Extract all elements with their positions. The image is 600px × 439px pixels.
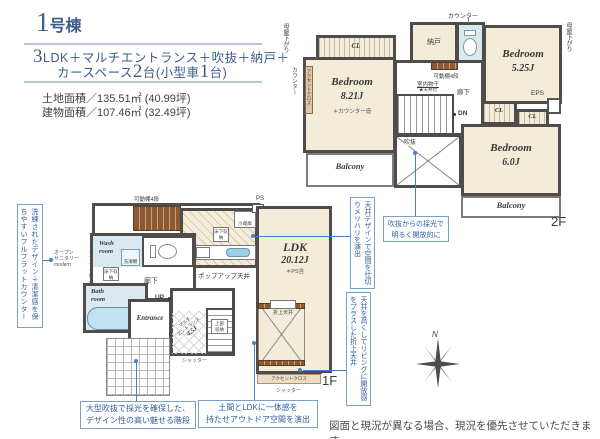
- annotation-void-light: 吹抜からの採光で 明るく開放的に: [383, 216, 449, 242]
- shelf-closet-1f: [133, 206, 181, 231]
- toilet-2f-tank-icon: [464, 30, 476, 36]
- counter-top-label: カウンター: [448, 11, 478, 20]
- open-sanitary-label: オープン サニタリー modern: [54, 250, 79, 268]
- annotation-stairs-dot: [134, 359, 138, 363]
- storage-nando-label: 納戸: [412, 37, 456, 47]
- counter-side-label: カウンター: [290, 67, 298, 103]
- bedroom-821-size: 8.21J: [310, 91, 394, 102]
- annotation-stairs: 大型吹抜で採光を確保した、 デザイン性の高い魅せる階段: [80, 401, 196, 429]
- annotation-coffered: 天井を高くしてリビングに開放感をプラスした折上天井: [346, 292, 371, 406]
- coffered-label: 折上天井: [273, 310, 293, 316]
- closet-2f-mid1-label: CL: [481, 107, 517, 114]
- kitchen-stove-icon: [196, 247, 210, 258]
- eps-label: EPS: [531, 90, 544, 97]
- spec-ldk-number: 3: [33, 46, 43, 67]
- building-area: 建物面積／107.46㎡ (32.49坪): [42, 104, 191, 120]
- closet-2f-mid2-label: CL: [516, 113, 549, 120]
- upper-storage-label: 上部収納: [212, 320, 227, 333]
- annotation-void-leader: [415, 155, 416, 216]
- upper-storage-l1: 上部: [215, 321, 224, 326]
- eps-shaft: [547, 98, 561, 114]
- wash-room-label-l1: Wash: [99, 240, 114, 248]
- underfloor-storage-kitchen-label: 床下収納: [214, 228, 228, 241]
- popup-ceiling-label: ポップアップ天井: [198, 270, 250, 280]
- underfloor-storage-hall: 床下収納: [103, 267, 119, 281]
- ldk-note: ＊PS含: [276, 267, 314, 275]
- annotation-doma-l2: 持たせアウトドア空間を演出: [199, 414, 317, 426]
- bedroom-60-name: Bedroom: [466, 142, 556, 154]
- balcony-2f-left-label: Balcony: [318, 161, 382, 171]
- ps-label: PS: [256, 196, 264, 202]
- annotation-void-light-l2: 明るく開放的に: [384, 230, 448, 241]
- kitchen-sink-icon: [226, 248, 250, 257]
- upper-storage-box: 上部収納: [211, 319, 228, 334]
- porch-steps: [106, 338, 170, 396]
- annotation-doma-dot: [252, 341, 256, 345]
- indoor-drying-note: ★天井付: [413, 87, 443, 93]
- fridge-box: 冷蔵庫: [234, 211, 256, 228]
- header-divider-bottom: [24, 81, 262, 83]
- spec-carspace-mid: 台(小型車: [143, 66, 200, 80]
- compass-rose-icon: [414, 338, 462, 388]
- accent-band-1f-label: アクセントクロス: [257, 376, 321, 382]
- spec-compact-count: 1: [200, 61, 210, 82]
- building-title: 1号棟: [36, 9, 82, 36]
- toilet-1f-bowl-icon: [158, 244, 177, 259]
- bath-room-label-l2: room: [91, 296, 105, 304]
- building-number: 1: [36, 7, 50, 37]
- toilet-1f-tank-icon: [150, 245, 156, 258]
- shelf-2f-label: 可動棚4段: [429, 72, 463, 80]
- annotation-counter-dot: [49, 258, 53, 262]
- annotation-ceiling-zone: 天井デザインで空間を仕切りメリハリを演出: [350, 197, 375, 289]
- coffered-label-box: 折上天井: [270, 300, 296, 309]
- underfloor-storage-kitchen: 床下収納: [213, 227, 229, 242]
- underfloor-storage-hall-label: 床下収納: [104, 268, 118, 281]
- bath-room-label-l1: Bath: [91, 288, 105, 296]
- annotation-ceiling-zone-dot: [251, 234, 255, 238]
- ldk-size: 20.12J: [268, 255, 322, 266]
- bedroom-821: [303, 57, 396, 153]
- spec-carspace-text: カースペース: [57, 66, 133, 80]
- wash-room-label: Wash room: [99, 240, 114, 255]
- roof-slope-label-right: 母屋下がり: [564, 22, 573, 68]
- shutter-mid-label: シャッター: [182, 357, 207, 364]
- disclaimer: 図面と現況が異なる場合、現況を優先させていただきます。: [329, 418, 600, 439]
- floorplan-canvas: 1号棟 3LDK＋マルチエントランス＋吹抜＋納戸＋ カースペース2台(小型車1台…: [0, 0, 600, 439]
- bedroom-821-name: Bedroom: [310, 76, 394, 88]
- bedroom-60-size: 6.0J: [466, 157, 556, 168]
- stairs-up-dot: [168, 297, 171, 300]
- floor-1f-label: 1F: [322, 373, 337, 388]
- hallway-2f-label: 廊下: [457, 86, 470, 96]
- open-sanitary-l3: modern: [54, 262, 79, 268]
- annotation-stairs-leader: [136, 362, 137, 401]
- stairs-down-dot: [453, 113, 456, 116]
- stairs-up-label: UP: [155, 294, 164, 301]
- wash-room-label-l2: room: [99, 248, 114, 256]
- spec-carspace-end: 台): [210, 66, 228, 80]
- annotation-stairs-l2: デザイン性の高い魅せる階段: [81, 415, 195, 427]
- annotation-ceiling-zone-leader: [256, 236, 350, 237]
- annotation-void-dot: [413, 151, 417, 155]
- counter-top-leader: [468, 18, 469, 23]
- upper-storage-l2: 収納: [215, 327, 224, 332]
- entrance-label: Entrance: [130, 314, 170, 322]
- bedroom-525-name: Bedroom: [488, 48, 558, 60]
- void-label: 吹抜: [404, 137, 416, 146]
- ldk-name: LDK: [270, 240, 320, 255]
- annotation-doma: 土間とLDKに一体感を 持たせアウトドア空間を演出: [198, 400, 318, 428]
- closet-2f-top-label: CL: [316, 42, 396, 50]
- spec-line-2: カースペース2台(小型車1台): [57, 61, 227, 83]
- annotation-coffered-leader: [303, 370, 346, 371]
- annotation-void-light-l1: 吹抜からの採光で: [384, 219, 448, 230]
- bath-room-label: Bath room: [91, 288, 105, 303]
- annotation-doma-l1: 土間とLDKに一体感を: [199, 402, 317, 414]
- shelf-1f-label: 可動棚4段: [134, 195, 159, 203]
- stairs-2f: [396, 94, 454, 135]
- stairs-down-label: DN: [458, 110, 467, 117]
- washer-label: 洗濯機: [124, 259, 138, 264]
- bedroom-525-size: 5.25J: [488, 63, 558, 74]
- header-divider-top: [24, 43, 262, 45]
- bedroom-821-note: ＊カウンター造: [310, 107, 394, 115]
- annotation-counter: 洗練されたデザイン＋清潔感を保ちやすいフルフラットカウンター: [17, 204, 43, 328]
- annotation-doma-leader: [254, 344, 255, 400]
- building-suffix: 号棟: [50, 18, 82, 35]
- washer-box: 洗濯機: [121, 249, 140, 266]
- shutter-right-label: シャッター: [276, 387, 301, 394]
- spec-carspace-count: 2: [133, 61, 143, 82]
- coffered-bottom-strip: [258, 360, 305, 366]
- annotation-stairs-l1: 大型吹抜で採光を確保した、: [81, 403, 195, 415]
- fridge-label: 冷蔵庫: [238, 221, 252, 226]
- roof-slope-label-left: 母屋下がり: [281, 23, 290, 69]
- annotation-coffered-dot: [298, 368, 302, 372]
- balcony-2f-right-label: Balcony: [477, 200, 545, 210]
- shelf-2f: [431, 62, 458, 70]
- toilet-2f-bowl-icon: [463, 38, 477, 56]
- floor-2f-label: 2F: [551, 214, 566, 229]
